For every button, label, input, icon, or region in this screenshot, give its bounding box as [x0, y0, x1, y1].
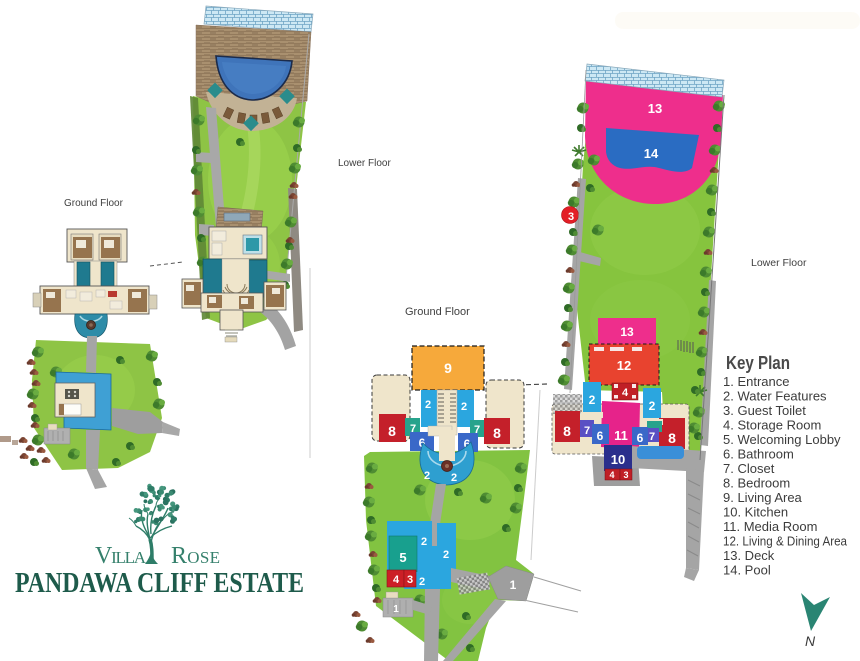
svg-text:Key Plan: Key Plan [726, 353, 790, 373]
svg-text:1. Entrance: 1. Entrance [723, 374, 790, 389]
svg-text:3: 3 [407, 574, 413, 586]
svg-text:Lower Floor: Lower Floor [338, 158, 391, 169]
svg-text:PANDAWA CLIFF ESTATE: PANDAWA CLIFF ESTATE [15, 567, 304, 599]
svg-text:7: 7 [584, 425, 590, 437]
svg-text:7. Closet: 7. Closet [723, 461, 775, 476]
svg-text:8. Bedroom: 8. Bedroom [723, 476, 790, 491]
svg-text:10. Kitchen: 10. Kitchen [723, 505, 788, 520]
svg-text:1: 1 [510, 578, 517, 592]
svg-text:11. Media Room: 11. Media Room [723, 519, 817, 534]
svg-text:2: 2 [419, 576, 425, 588]
svg-text:9: 9 [444, 360, 452, 376]
svg-text:3. Guest Toilet: 3. Guest Toilet [723, 403, 806, 418]
svg-text:3: 3 [568, 211, 574, 223]
svg-text:5: 5 [399, 550, 406, 565]
svg-text:2: 2 [443, 549, 449, 561]
svg-text:13: 13 [648, 101, 662, 116]
svg-text:14: 14 [644, 146, 659, 161]
svg-text:6. Bathroom: 6. Bathroom [723, 447, 794, 462]
svg-text:2: 2 [451, 472, 457, 484]
svg-text:2: 2 [425, 399, 431, 411]
svg-text:10: 10 [611, 452, 625, 467]
svg-text:6: 6 [597, 429, 604, 443]
svg-text:2: 2 [421, 536, 427, 548]
svg-text:13. Deck: 13. Deck [723, 548, 775, 563]
svg-text:9. Living Area: 9. Living Area [723, 490, 803, 505]
svg-text:4: 4 [622, 387, 629, 399]
svg-text:2: 2 [649, 399, 656, 413]
svg-text:5. Welcoming Lobby: 5. Welcoming Lobby [723, 432, 841, 447]
svg-text:2. Water Features: 2. Water Features [723, 389, 827, 404]
svg-text:14. Pool: 14. Pool [723, 563, 771, 578]
svg-text:2: 2 [461, 401, 467, 413]
svg-text:1: 1 [393, 604, 399, 615]
svg-text:8: 8 [563, 423, 571, 439]
svg-text:12: 12 [617, 358, 631, 373]
svg-text:N: N [805, 633, 816, 649]
svg-text:8: 8 [493, 425, 501, 441]
svg-text:12. Living & Dining Area: 12. Living & Dining Area [723, 534, 848, 549]
svg-text:8: 8 [388, 423, 396, 439]
svg-text:4: 4 [609, 470, 614, 480]
svg-text:Ground Floor: Ground Floor [405, 306, 470, 318]
svg-text:Villa: Villa [95, 543, 147, 569]
svg-text:3: 3 [623, 470, 628, 480]
svg-text:4: 4 [393, 574, 400, 586]
svg-text:Rose: Rose [171, 543, 220, 569]
svg-text:8: 8 [668, 430, 676, 446]
svg-text:Ground Floor: Ground Floor [64, 198, 124, 209]
svg-text:2: 2 [589, 393, 596, 407]
svg-text:Lower Floor: Lower Floor [751, 257, 807, 269]
svg-text:6: 6 [637, 431, 644, 445]
svg-text:13: 13 [620, 325, 634, 339]
svg-text:11: 11 [614, 428, 628, 443]
svg-text:2: 2 [424, 470, 430, 482]
svg-text:7: 7 [649, 431, 655, 443]
svg-text:4. Storage Room: 4. Storage Room [723, 418, 821, 433]
